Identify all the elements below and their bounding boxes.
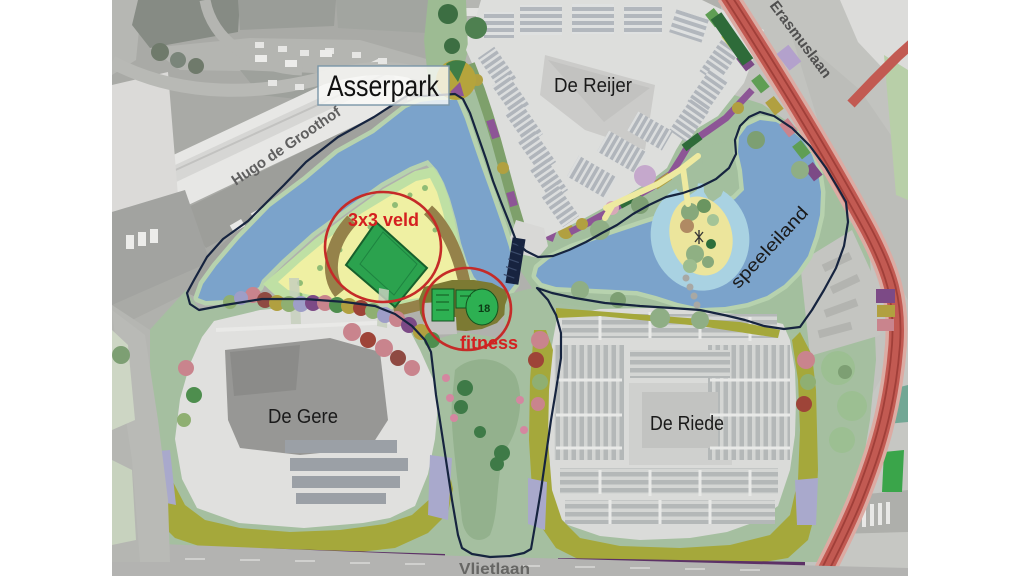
svg-text:De Gere: De Gere bbox=[268, 406, 338, 428]
svg-text:Vlietlaan: Vlietlaan bbox=[459, 561, 530, 576]
svg-text:De Reijer: De Reijer bbox=[554, 75, 632, 97]
svg-text:fitness: fitness bbox=[460, 333, 518, 353]
svg-text:18: 18 bbox=[478, 303, 490, 315]
svg-text:3x3 veld: 3x3 veld bbox=[348, 210, 419, 230]
svg-text:Asserpark: Asserpark bbox=[327, 70, 440, 103]
svg-text:De Riede: De Riede bbox=[650, 413, 724, 435]
